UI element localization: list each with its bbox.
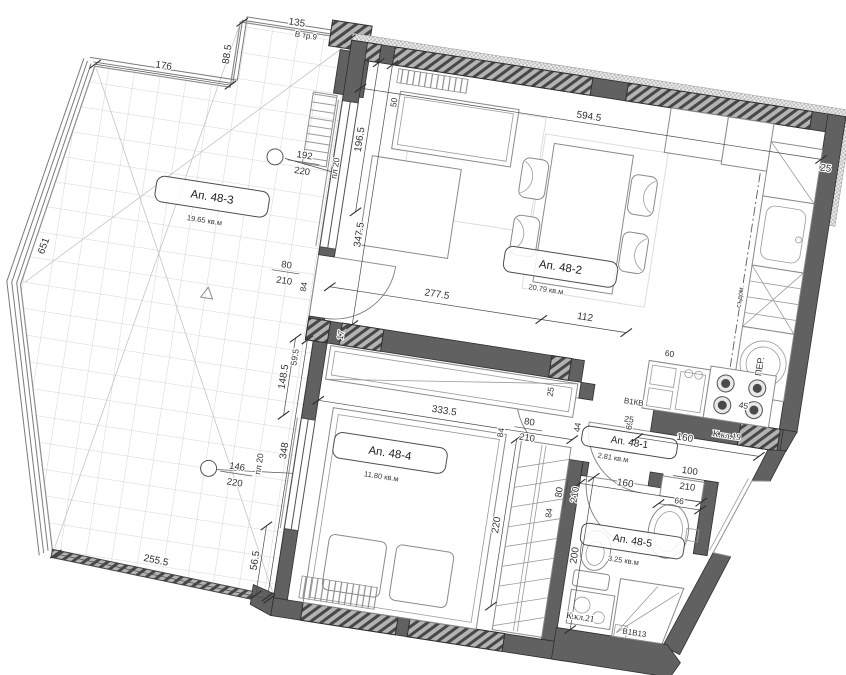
floorplan-svg: Ап. 48-3 19.65 кв.м	[0, 0, 846, 675]
bedroom-48-4: Ап. 48-4 11.80 кв.м	[291, 346, 580, 640]
dim-45: 45	[738, 400, 749, 411]
chair	[627, 174, 659, 218]
dim-25-pier: 25	[545, 386, 556, 397]
dim-25-corner: 25	[819, 162, 832, 175]
wall-bedroom-right-a	[579, 382, 595, 400]
door-w: 80	[553, 486, 565, 498]
room-area: 2.81 кв.м	[597, 451, 629, 465]
dim-112: 112	[576, 311, 594, 324]
stove	[703, 366, 776, 427]
dim-220-wardrobe: 220	[490, 516, 503, 535]
dim-50: 50	[388, 97, 399, 108]
dim-25-step: 25	[624, 413, 635, 424]
chair	[518, 157, 550, 201]
door-w: 80	[523, 416, 535, 428]
pillow	[389, 544, 455, 608]
door-entry	[709, 474, 770, 561]
floorplan-canvas: Ап. 48-3 19.65 кв.м	[0, 0, 846, 675]
dim-88-5: 88.5	[221, 43, 235, 64]
door-balcony	[325, 257, 396, 328]
label-dishwasher: съдом.	[735, 285, 745, 308]
dim-66: 66	[674, 495, 685, 506]
door-w: 80	[280, 259, 292, 271]
wall-kitchen-hatch	[737, 423, 780, 451]
counter-b1kv	[642, 360, 711, 417]
dim-44: 44	[572, 422, 583, 433]
dim-333-5: 333.5	[431, 404, 458, 419]
label-pl20-living: пл 20	[328, 157, 341, 180]
dim-160-counter: 160	[676, 432, 695, 445]
door-mark-bedroom: 80 210	[512, 415, 544, 446]
dim-84-bathroom: 84	[543, 507, 554, 518]
upper-cabinet-b	[721, 117, 774, 171]
dim-84-balcony: 84	[298, 281, 309, 292]
upper-cabinet-a	[664, 108, 728, 161]
dim-60: 60	[664, 348, 675, 359]
dim-176: 176	[154, 60, 173, 73]
label-b1kv: В1КВ	[623, 396, 644, 408]
armchair-rug	[359, 156, 462, 259]
dim-160-bath: 160	[616, 477, 635, 490]
dishwasher	[743, 265, 804, 334]
dim-17: 17	[335, 329, 346, 340]
dim-200: 200	[568, 546, 581, 565]
plan-rotated-group: Ап. 48-3 19.65 кв.м	[0, 0, 846, 675]
kitchen-sink	[752, 196, 814, 273]
wall-pier-hatch-a	[339, 323, 384, 351]
terrace-floor	[0, 0, 360, 598]
dim-277-5: 277.5	[424, 287, 451, 302]
wall-pier-hatch-b	[549, 356, 572, 381]
door-w: 100	[681, 465, 698, 478]
room-area: 3.25 кв.м	[607, 554, 639, 568]
chair	[618, 231, 650, 275]
wall-slant-upper	[752, 446, 786, 485]
dim-84-bedroom: 84	[495, 427, 506, 438]
door-h: 210	[569, 486, 582, 503]
